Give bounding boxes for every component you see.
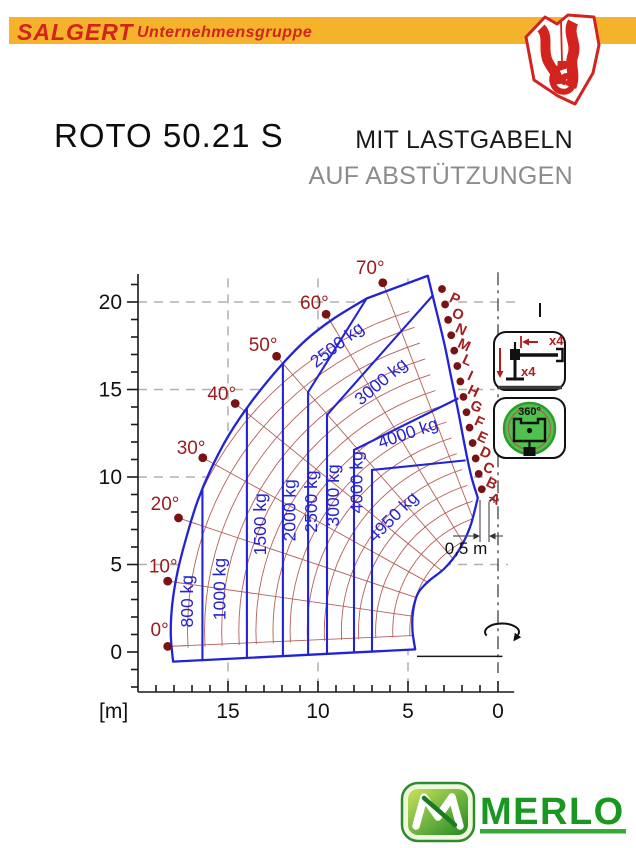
merlo-underline bbox=[480, 829, 626, 834]
y-tick-label: 10 bbox=[99, 466, 122, 489]
subtitle-support: AUF ABSTÜTZUNGEN bbox=[308, 162, 573, 191]
load-label: 2500 kg bbox=[301, 470, 321, 532]
extension-dot bbox=[438, 285, 446, 293]
merlo-wordmark: MERLO bbox=[480, 791, 625, 833]
x-tick-label: 15 bbox=[216, 700, 239, 723]
angle-label: 50° bbox=[249, 335, 278, 356]
extension-dot bbox=[478, 485, 486, 493]
dim-arrowhead-left bbox=[489, 533, 496, 540]
extension-letter: G bbox=[468, 398, 485, 417]
angle-dot bbox=[163, 642, 172, 651]
turret-center-dot bbox=[527, 428, 532, 433]
angle-label: 40° bbox=[207, 384, 236, 405]
extension-letter: I bbox=[465, 368, 475, 384]
angle-label: 0° bbox=[151, 620, 169, 641]
outrigger-x4-vertical: x4 bbox=[521, 364, 536, 379]
brand-suffix: Unternehmensgruppe bbox=[137, 24, 312, 42]
angle-label: 20° bbox=[151, 494, 180, 515]
extension-letter: B bbox=[483, 475, 499, 494]
angle-label: 70° bbox=[356, 258, 385, 279]
page: { "header": {"brand": "SALGERT", "brand_… bbox=[0, 0, 636, 848]
angle-label: 60° bbox=[300, 293, 329, 314]
x-tick-label: 10 bbox=[306, 700, 329, 723]
extension-dot bbox=[444, 316, 452, 324]
angle-label: 30° bbox=[177, 438, 206, 459]
extension-dot bbox=[456, 378, 464, 386]
angle-dot bbox=[163, 577, 172, 586]
subtitle-equipment: MIT LASTGABELN bbox=[308, 126, 573, 155]
rotation-arrowhead bbox=[513, 633, 521, 642]
y-tick-label: 20 bbox=[99, 291, 122, 314]
x-tick-label: 0 bbox=[492, 700, 504, 723]
extension-dot bbox=[472, 455, 480, 463]
extension-dot bbox=[475, 470, 483, 478]
turret-base bbox=[524, 447, 536, 456]
rotation-arrow bbox=[485, 624, 519, 636]
load-label: 3000 kg bbox=[323, 464, 343, 526]
extension-dot bbox=[460, 393, 468, 401]
extension-dot bbox=[447, 331, 455, 339]
extension-dot bbox=[453, 362, 461, 370]
x-tick-label: 5 bbox=[402, 700, 414, 723]
outrigger-block bbox=[510, 349, 520, 360]
extension-dot bbox=[463, 408, 471, 416]
rotation-360-label: 360° bbox=[518, 406, 541, 418]
dimension-label: 0,5 m bbox=[445, 539, 488, 558]
page-title: ROTO 50.21 S bbox=[54, 117, 284, 155]
brand-text: SALGERT bbox=[17, 19, 133, 46]
icon-column: x4 x4 360° bbox=[485, 295, 580, 470]
extension-dot bbox=[469, 439, 477, 447]
extension-letter: O bbox=[449, 305, 466, 324]
angle-label: 10° bbox=[149, 556, 178, 577]
outrigger-box: x4 x4 bbox=[494, 332, 565, 390]
load-label: 1000 kg bbox=[209, 558, 229, 620]
load-label: 800 kg bbox=[177, 575, 197, 628]
load-label: 2000 kg bbox=[280, 479, 300, 541]
extension-dot bbox=[441, 301, 449, 309]
y-tick-label: 5 bbox=[110, 554, 122, 577]
salgert-hook-logo bbox=[514, 3, 610, 118]
load-label: 1500 kg bbox=[250, 493, 270, 555]
subtitle-block: MIT LASTGABELN AUF ABSTÜTZUNGEN bbox=[308, 126, 573, 191]
angle-dot bbox=[378, 278, 387, 287]
axis-unit-label: [m] bbox=[99, 700, 128, 723]
outrigger-x4-horizontal: x4 bbox=[549, 333, 564, 348]
y-tick-label: 15 bbox=[99, 379, 122, 402]
merlo-logo: MERLO bbox=[396, 780, 632, 844]
hook-cable bbox=[561, 21, 562, 63]
rotation-box: 360° bbox=[494, 398, 565, 458]
y-tick-label: 0 bbox=[110, 641, 122, 664]
extension-dot bbox=[466, 424, 474, 432]
load-label: 4000 kg bbox=[347, 451, 367, 513]
extension-letter: L bbox=[460, 352, 475, 370]
extension-dot bbox=[450, 347, 458, 355]
